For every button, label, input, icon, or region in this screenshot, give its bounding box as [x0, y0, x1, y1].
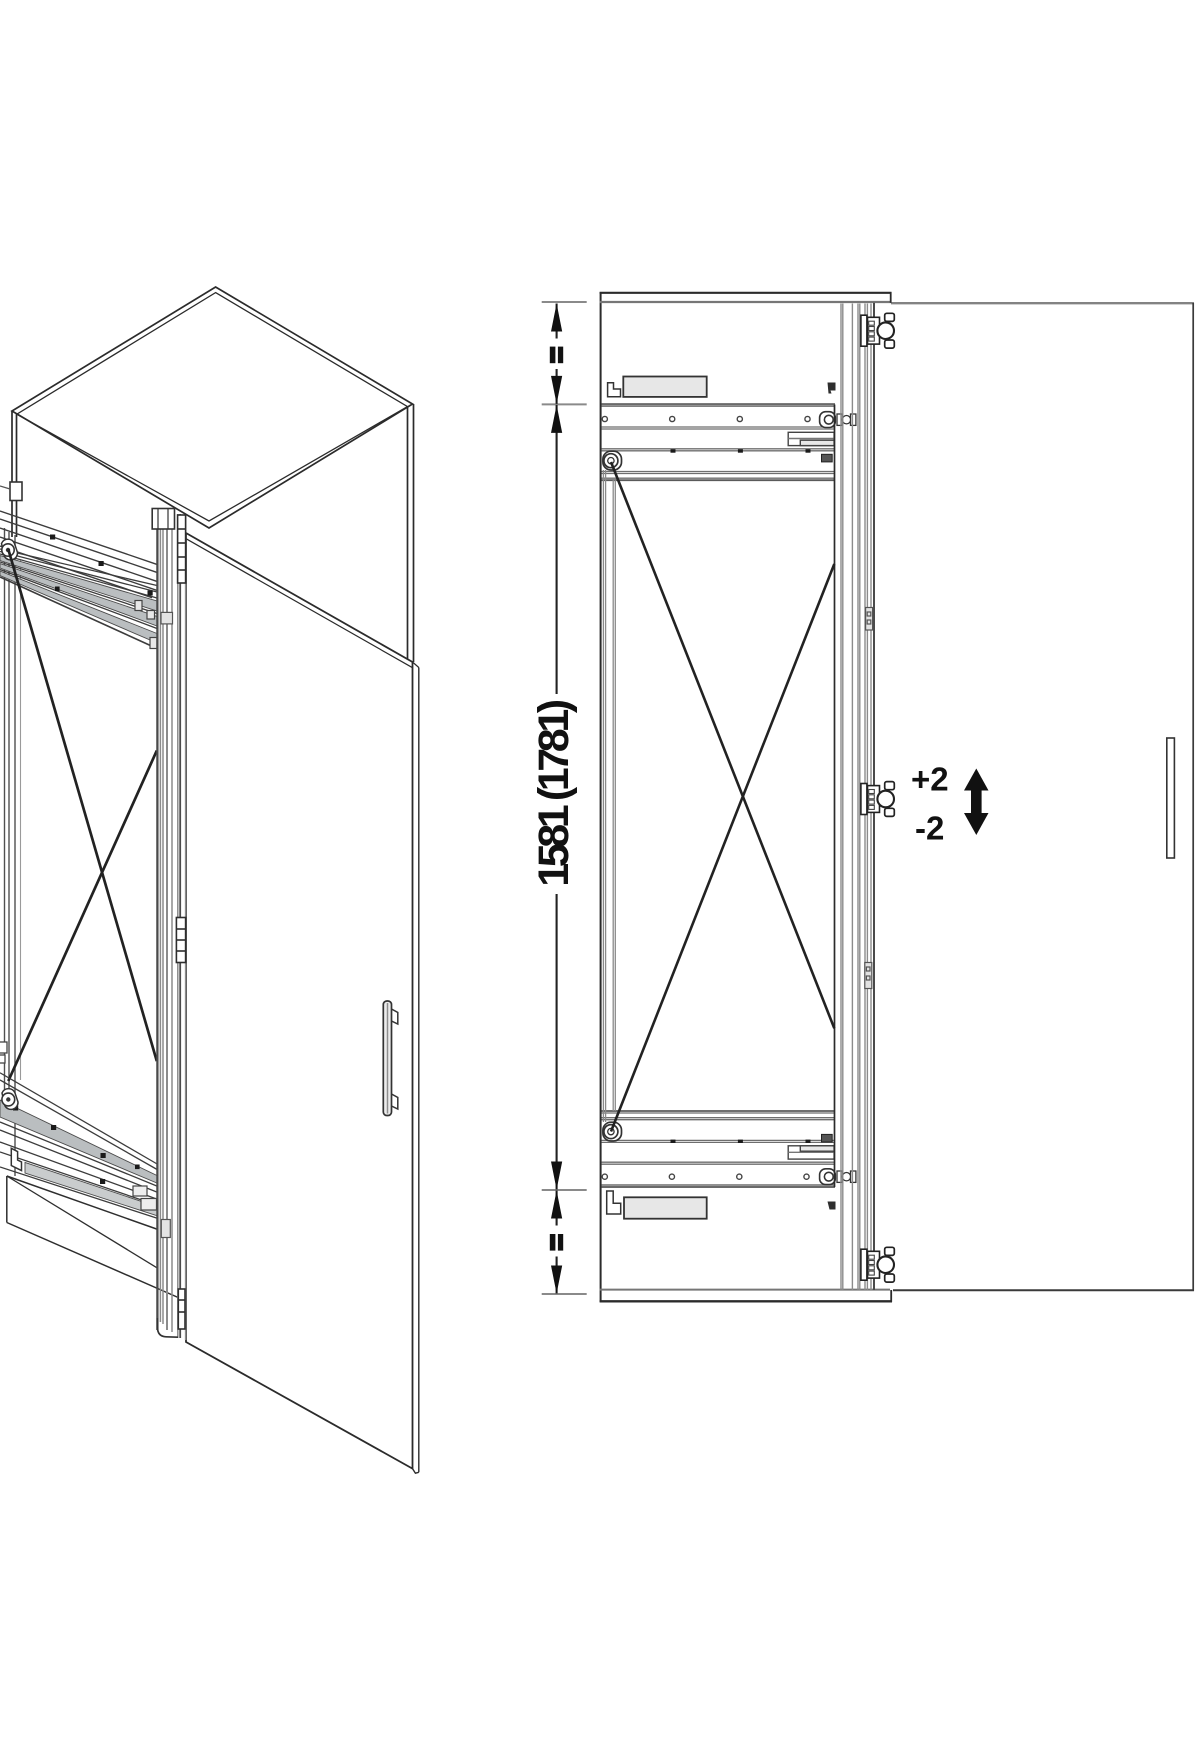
svg-text:-2: -2: [915, 810, 944, 847]
svg-text:+2: +2: [911, 761, 949, 798]
svg-text:1581 (1781): 1581 (1781): [530, 700, 578, 887]
